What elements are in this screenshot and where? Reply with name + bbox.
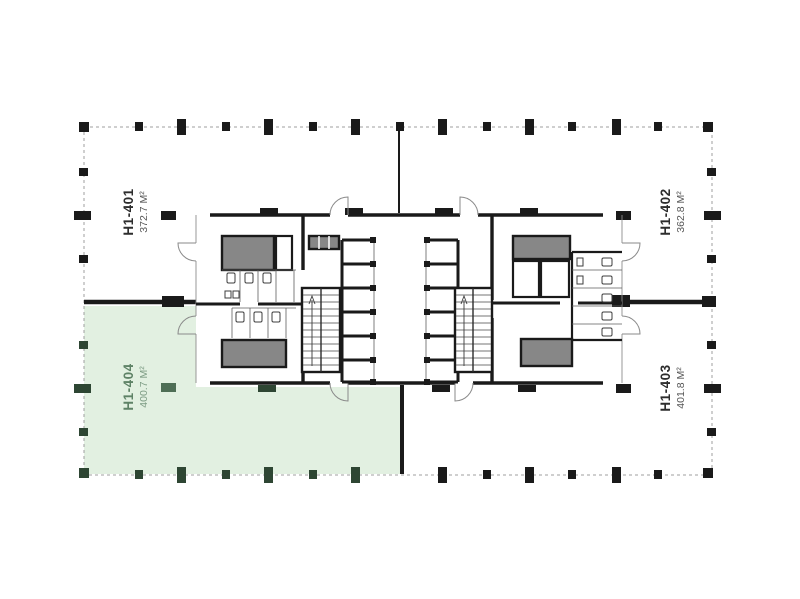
core (178, 197, 640, 401)
unit-area: 362.8 М² (675, 191, 687, 233)
unit-area: 401.8 М² (675, 367, 687, 409)
floor-plan: H1-401 372.7 М² H1-402 362.8 М² H1-403 4… (0, 0, 800, 599)
unit-area: 372.7 М² (138, 191, 150, 233)
unit-label-h1-402: H1-402 362.8 М² (658, 188, 687, 235)
unit-area: 400.7 М² (138, 366, 150, 408)
unit-label-h1-404: H1-404 400.7 М² (121, 363, 150, 410)
unit-name: H1-404 (121, 363, 136, 410)
unit-label-h1-401: H1-401 372.7 М² (121, 188, 150, 235)
stairwell-left (302, 288, 340, 372)
elevator-bank-left (342, 237, 376, 385)
unit-label-h1-403: H1-403 401.8 М² (658, 364, 687, 411)
stairwell-right (455, 288, 492, 372)
unit-name: H1-402 (658, 188, 673, 235)
unit-name: H1-403 (658, 364, 673, 411)
floor-plan-page: H1-401 372.7 М² H1-402 362.8 М² H1-403 4… (0, 0, 800, 599)
unit-name: H1-401 (121, 188, 136, 235)
elevator-bank-right (424, 237, 458, 385)
